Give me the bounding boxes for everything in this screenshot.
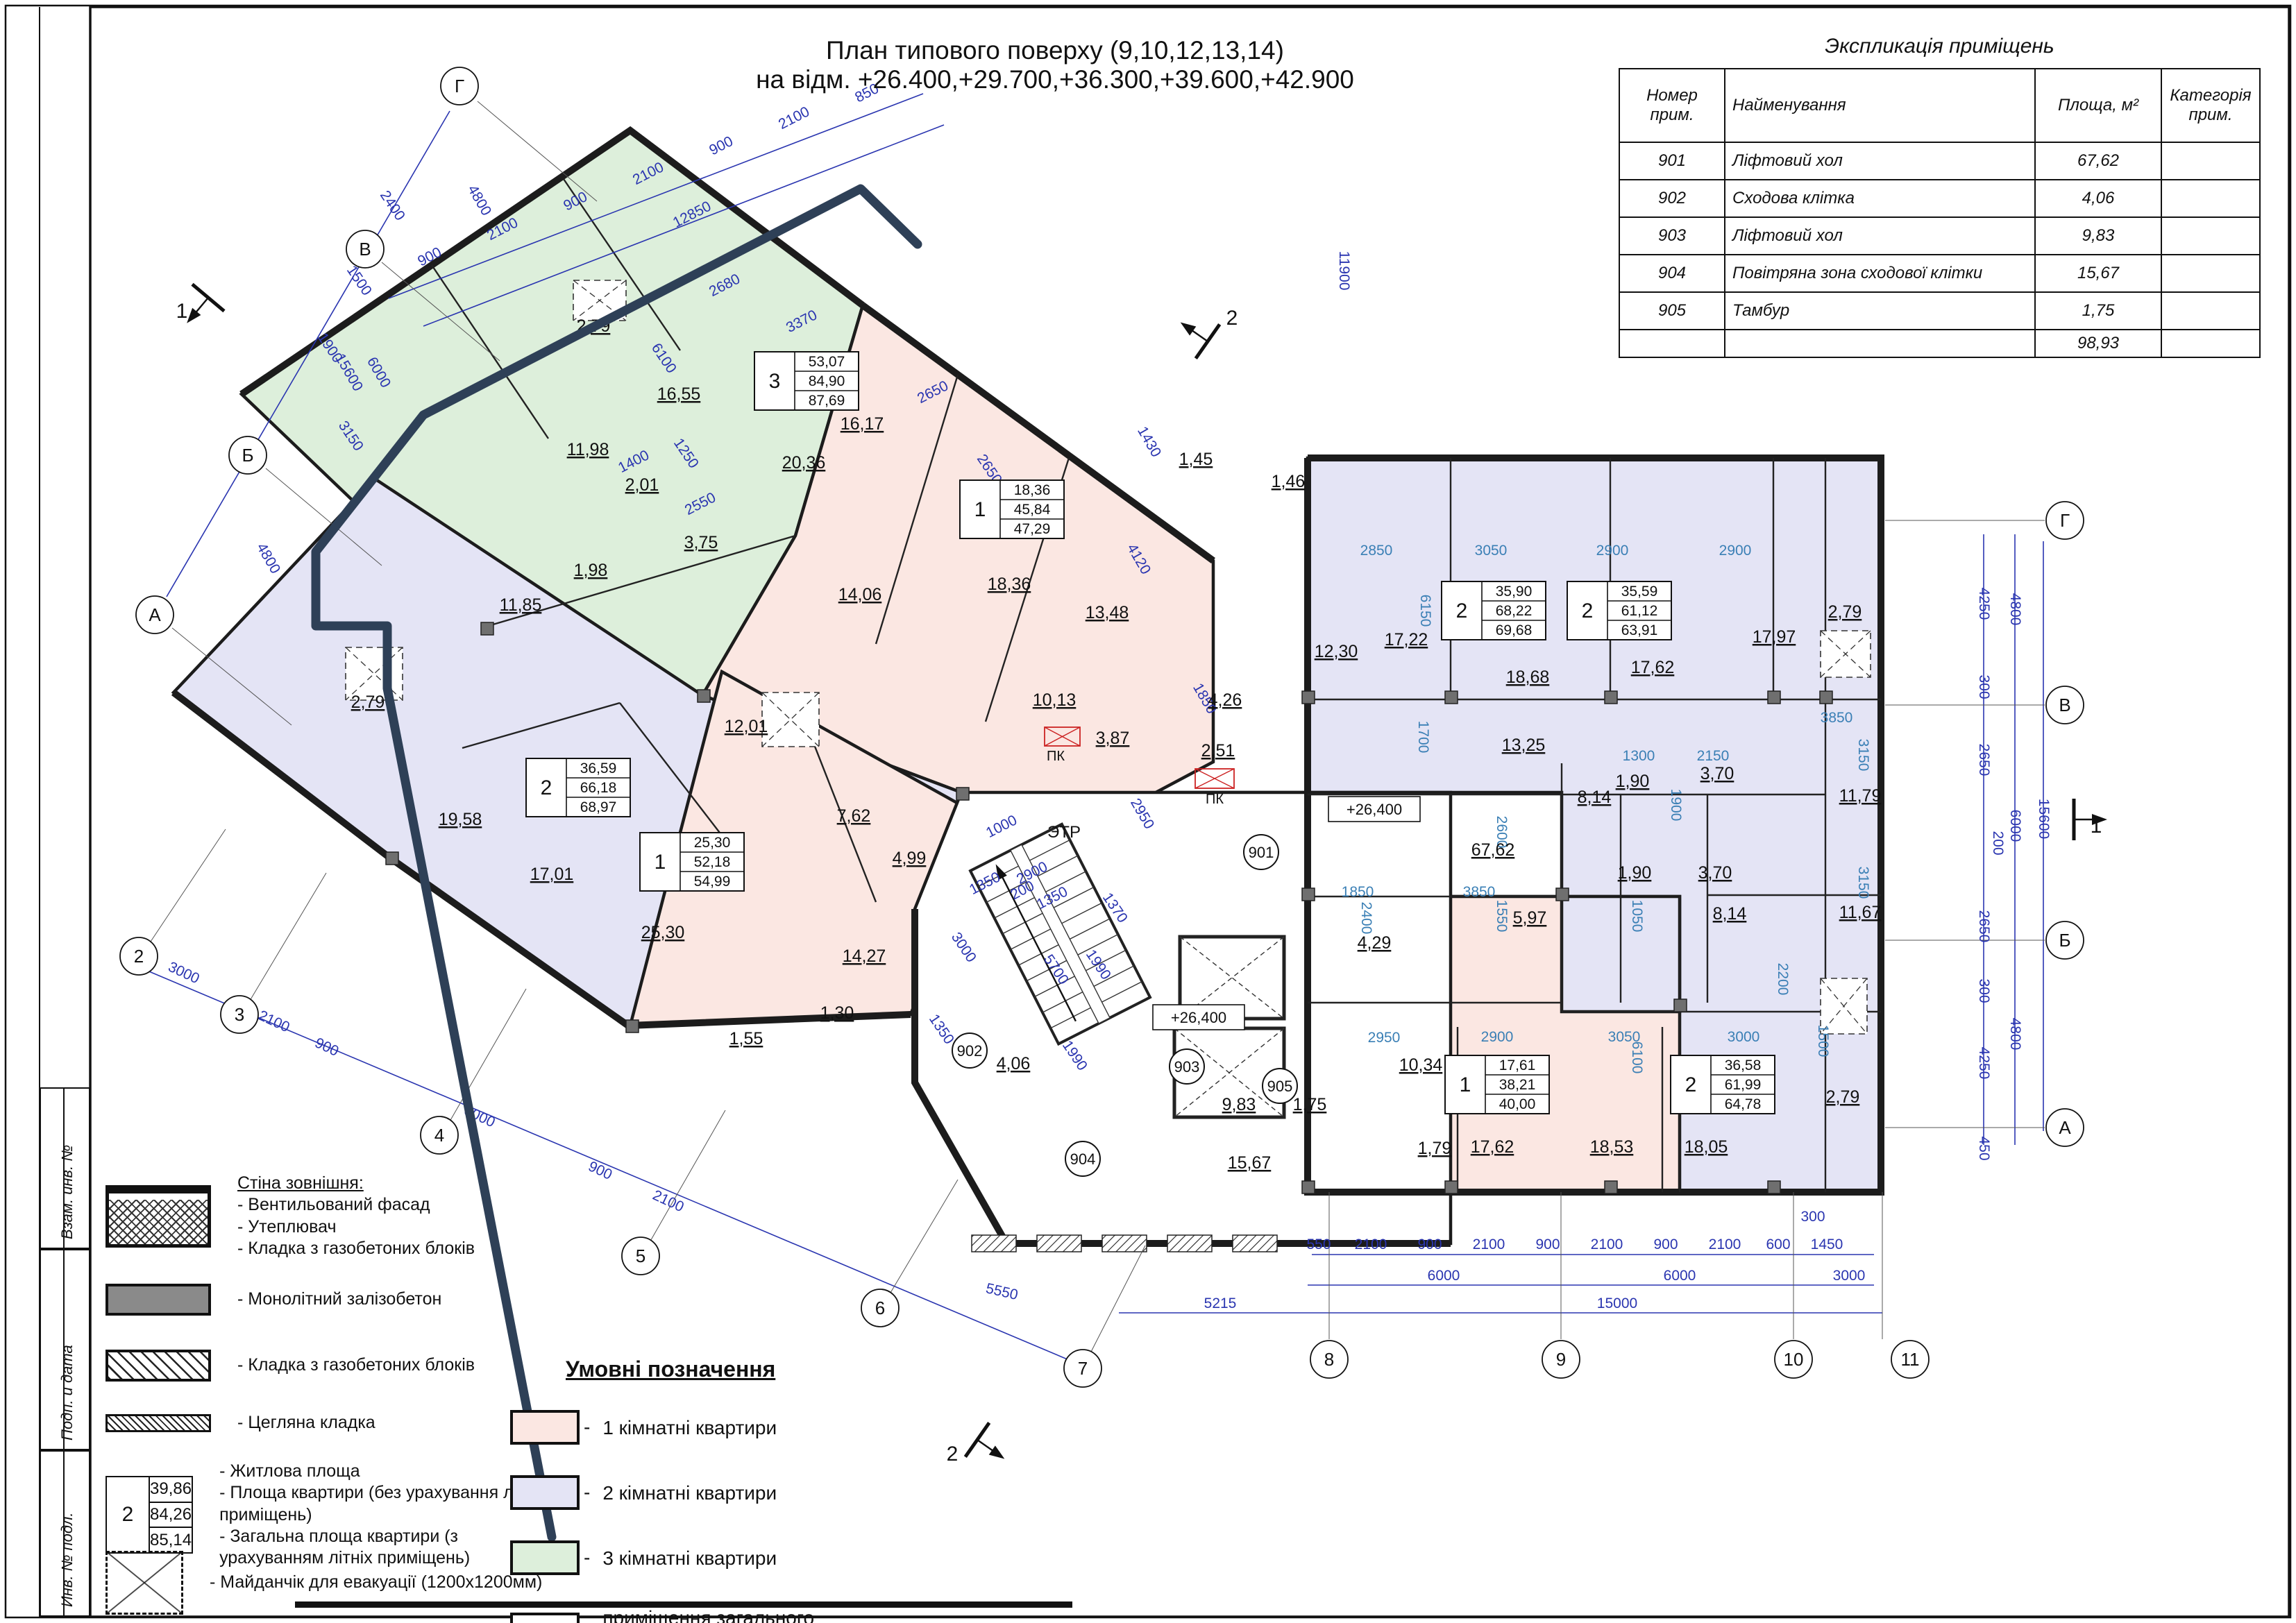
room-area-label: 20,36 bbox=[782, 453, 826, 473]
apartment-spec-box: 353,0784,9087,69 bbox=[754, 352, 859, 410]
axis-label: А bbox=[2059, 1117, 2071, 1138]
axis-label: 7 bbox=[1078, 1358, 1088, 1379]
table-cell: 15,67 bbox=[2035, 255, 2161, 292]
dimension-label: 5550 bbox=[984, 1280, 1020, 1303]
room-area-label: 16,55 bbox=[657, 384, 701, 404]
table-cell: 901 bbox=[1619, 142, 1725, 180]
spec-box-rooms: 1 bbox=[655, 851, 666, 874]
dimension-label: 4250 bbox=[1976, 588, 1992, 620]
dimension-label: 6000 bbox=[2007, 810, 2023, 842]
dimension-label: 2150 bbox=[1697, 748, 1730, 764]
spec-box-rooms: 3 bbox=[769, 370, 781, 393]
room-area-label: 11,98 bbox=[567, 440, 609, 459]
dimension-label: 2950 bbox=[1368, 1030, 1401, 1046]
legend-color-swatch bbox=[510, 1540, 580, 1575]
dimension-label: 300 bbox=[1800, 1209, 1825, 1225]
dimension-label: 2900 bbox=[1596, 543, 1629, 559]
concrete-pier bbox=[1768, 1181, 1780, 1193]
room-area-label: 1,90 bbox=[1618, 863, 1652, 883]
spec-box-rooms: 2 bbox=[1456, 600, 1468, 622]
room-area-label: 4,99 bbox=[893, 849, 927, 868]
room-area-label: 1,46 bbox=[1272, 472, 1306, 491]
spec-box-area: 84,90 bbox=[809, 373, 845, 389]
dimension-label: 3150 bbox=[1855, 867, 1871, 899]
hatched-wall bbox=[1167, 1235, 1212, 1252]
dimension-label: 6100 bbox=[1629, 1042, 1645, 1074]
legend-exterior-wall-label: Стіна зовнішня:- Вентильований фасад- Ут… bbox=[237, 1173, 475, 1259]
plan-title: План типового поверху (9,10,12,13,14) на… bbox=[639, 36, 1471, 94]
spec-box-area: 38,21 bbox=[1499, 1077, 1536, 1093]
dimension-label: 3850 bbox=[1821, 710, 1853, 726]
room-area-label: 10,34 bbox=[1399, 1055, 1443, 1075]
concrete-pier bbox=[1302, 1181, 1315, 1193]
axis-leader bbox=[1090, 1246, 1145, 1354]
table-cell: Ліфтовий хол bbox=[1725, 142, 2035, 180]
room-area-label: 10,13 bbox=[1033, 690, 1077, 710]
explication-table: Экспликація приміщень Номер прим.Наймену… bbox=[1619, 35, 2261, 358]
room-area-label: 4,29 bbox=[1358, 933, 1392, 953]
dimension-label: 4800 bbox=[253, 541, 283, 577]
table-row: 903Ліфтовий хол9,83 bbox=[1619, 217, 2260, 255]
spec-box-rooms: 2 bbox=[1582, 600, 1594, 622]
room-area-label: 12,30 bbox=[1315, 642, 1358, 661]
axis-label: Г bbox=[2060, 510, 2070, 531]
spec-box-area: 45,84 bbox=[1014, 502, 1051, 518]
room-area-label: 13,48 bbox=[1086, 603, 1129, 622]
spec-box-area: 35,59 bbox=[1621, 584, 1658, 600]
legend-exterior-wall: Стіна зовнішня:- Вентильований фасад- Ут… bbox=[105, 1173, 475, 1259]
legend-dash: - bbox=[584, 1481, 590, 1504]
table-cell: Сходова клітка bbox=[1725, 180, 2035, 217]
spec-box-area: 66,18 bbox=[580, 780, 617, 796]
axis-label: 8 bbox=[1324, 1349, 1334, 1370]
table-total-row: 98,93 bbox=[1619, 330, 2260, 357]
spec-box-area: 52,18 bbox=[694, 854, 731, 870]
table-cell bbox=[2161, 142, 2260, 180]
table-cell: 9,83 bbox=[2035, 217, 2161, 255]
axis-leader bbox=[149, 829, 226, 944]
table-row: 905Тамбур1,75 bbox=[1619, 292, 2260, 330]
axis-label: А bbox=[149, 604, 161, 625]
axis-label: 5 bbox=[636, 1246, 645, 1266]
dimension-label: 2900 bbox=[1481, 1029, 1514, 1045]
legend-monolithic-concrete-swatch bbox=[105, 1284, 211, 1316]
room-area-label: 8,14 bbox=[1713, 904, 1747, 924]
dimension-label: 3000 bbox=[1833, 1268, 1866, 1284]
room-area-label: 67,62 bbox=[1471, 840, 1515, 860]
room-area-label: 4,26 bbox=[1208, 690, 1242, 710]
hatched-wall bbox=[972, 1235, 1016, 1252]
legend-area-spec-swatch: 239,8684,2685,14 bbox=[105, 1476, 193, 1554]
dimension-label: 900 bbox=[312, 1035, 341, 1060]
concrete-pier bbox=[1302, 888, 1315, 901]
legend-item-label: 2 кімнатні квартири bbox=[602, 1481, 777, 1505]
section-number: 1 bbox=[176, 300, 188, 323]
spec-box-area: 18,36 bbox=[1014, 482, 1051, 498]
room-area-label: 1,75 bbox=[1293, 1095, 1327, 1114]
dimension-label: 1430 bbox=[1134, 424, 1164, 460]
legend-exterior-wall-swatch bbox=[105, 1185, 211, 1248]
table-cell: 903 bbox=[1619, 217, 1725, 255]
table-row: 904Повітряна зона сходової клітки15,67 bbox=[1619, 255, 2260, 292]
room-area-label: 1,55 bbox=[729, 1029, 763, 1048]
level-mark: +26,400 bbox=[1347, 801, 1402, 818]
dimension-label: 200 bbox=[1990, 831, 2006, 855]
dimension-label: 900 bbox=[1653, 1237, 1678, 1252]
room-area-label: 17,01 bbox=[530, 865, 574, 884]
room-area-label: 2,79 bbox=[1826, 1087, 1860, 1107]
apartment-spec-box: 117,6138,2140,00 bbox=[1445, 1055, 1549, 1114]
axis-label: 9 bbox=[1556, 1349, 1566, 1370]
room-area-label: 14,27 bbox=[843, 946, 886, 966]
concrete-pier bbox=[1605, 1181, 1617, 1193]
dimension-label: 900 bbox=[707, 133, 736, 158]
concrete-pier bbox=[481, 622, 493, 635]
legend-brick-masonry-swatch bbox=[105, 1414, 211, 1432]
legend-brick-masonry: - Цегляна кладка bbox=[105, 1412, 375, 1434]
spec-box-rooms: 2 bbox=[1685, 1073, 1697, 1096]
room-area-label: 5,97 bbox=[1513, 908, 1547, 928]
dimension-label: 15000 bbox=[1597, 1295, 1637, 1311]
dimension-label: 2100 bbox=[1709, 1237, 1741, 1252]
dimension-label: 3000 bbox=[1728, 1029, 1760, 1045]
hatched-wall bbox=[1037, 1235, 1081, 1252]
dimension-label: 900 bbox=[1535, 1237, 1560, 1252]
dimension-label: 2100 bbox=[776, 103, 812, 133]
table-total-cell bbox=[1619, 330, 1725, 357]
symbols-legend-title: Умовні позначення bbox=[566, 1357, 1038, 1382]
spec-box-area: 25,30 bbox=[694, 835, 731, 851]
room-area-label: 19,58 bbox=[439, 810, 482, 829]
dimension-label: 2100 bbox=[1591, 1237, 1623, 1252]
explication-title: Экспликація приміщень bbox=[1619, 35, 2261, 58]
room-area-label: 18,53 bbox=[1590, 1137, 1634, 1157]
room-area-label: 18,36 bbox=[988, 575, 1031, 594]
spec-box-area: 36,58 bbox=[1725, 1057, 1762, 1073]
spec-box-area: 53,07 bbox=[809, 354, 845, 370]
dimension-label: 1700 bbox=[1415, 721, 1431, 754]
dimension-label: 1050 bbox=[1629, 900, 1645, 933]
room-area-label: 17,62 bbox=[1471, 1137, 1514, 1157]
dimension-label: 2650 bbox=[1976, 744, 1992, 776]
legend-color-swatch bbox=[510, 1613, 580, 1623]
spec-box-area: 87,69 bbox=[809, 393, 845, 409]
axis-leader bbox=[478, 101, 597, 201]
dimension-label: 2100 bbox=[256, 1008, 292, 1036]
dimension-label: 550 bbox=[1306, 1237, 1331, 1252]
etr-label: ЭТР bbox=[1047, 823, 1081, 842]
dimension-label: 1550 bbox=[1494, 900, 1510, 933]
plan-title-line1: План типового поверху (9,10,12,13,14) bbox=[639, 36, 1471, 65]
room-area-label: 18,68 bbox=[1506, 668, 1550, 687]
room-area-label: 7,62 bbox=[837, 806, 871, 826]
side-strip-label: Взам. инв. № bbox=[58, 1145, 76, 1239]
axis-label: 3 bbox=[235, 1004, 244, 1025]
legend-item-label: приміщення загального користування bbox=[602, 1606, 894, 1623]
room-area-label: 25,30 bbox=[641, 923, 685, 942]
table-header: Категорія прим. bbox=[2161, 69, 2260, 142]
legend-item: -приміщення загального користування bbox=[510, 1606, 1038, 1623]
room-area-label: 2,01 bbox=[625, 475, 659, 495]
table-total-cell bbox=[2161, 330, 2260, 357]
table-cell: Тамбур bbox=[1725, 292, 2035, 330]
table-cell: 1,75 bbox=[2035, 292, 2161, 330]
room-number: 902 bbox=[957, 1042, 983, 1060]
dimension-label: 1500 bbox=[1815, 1025, 1831, 1057]
plan-title-line2: на відм. +26.400,+29.700,+36.300,+39.600… bbox=[639, 65, 1471, 94]
room-area-label: 1,30 bbox=[820, 1003, 854, 1023]
dimension-label: 2100 bbox=[1473, 1237, 1505, 1252]
apartment-spec-box: 125,3052,1854,99 bbox=[640, 833, 744, 891]
room-area-label: 3,87 bbox=[1096, 729, 1130, 748]
room-area-label: 2,51 bbox=[1201, 741, 1235, 760]
dimension-label: 3000 bbox=[166, 959, 202, 987]
spec-box-area: 35,90 bbox=[1496, 584, 1533, 600]
axis-label: 2 bbox=[134, 946, 144, 967]
table-total-cell bbox=[1725, 330, 2035, 357]
axis-leader bbox=[250, 873, 326, 1001]
table-cell: Ліфтовий хол bbox=[1725, 217, 2035, 255]
explication-body: 901Ліфтовий хол67,62902Сходова клітка4,0… bbox=[1619, 142, 2260, 357]
dimension-label: 1300 bbox=[1623, 748, 1655, 764]
axis-label: Г bbox=[455, 76, 464, 96]
room-area-label: 18,05 bbox=[1685, 1137, 1728, 1157]
dimension-label: 11900 bbox=[1336, 251, 1352, 291]
room-area-label: 9,83 bbox=[1222, 1095, 1256, 1114]
dimension-label: 2650 bbox=[1976, 910, 1992, 943]
legend-color-swatch bbox=[510, 1410, 580, 1445]
table-cell: 905 bbox=[1619, 292, 1725, 330]
dimension-label: 1500 bbox=[344, 263, 375, 299]
table-header: Номер прим. bbox=[1619, 69, 1725, 142]
concrete-pier bbox=[698, 690, 710, 702]
legend-dash: - bbox=[584, 1416, 590, 1438]
dimension-label: 3850 bbox=[1463, 884, 1496, 900]
concrete-pier bbox=[1605, 691, 1617, 704]
room-area-label: 3,70 bbox=[1698, 863, 1732, 883]
legend-aerated-block-label: - Кладка з газобетоних блоків bbox=[237, 1354, 475, 1376]
concrete-pier bbox=[1768, 691, 1780, 704]
spec-box-area: 68,97 bbox=[580, 799, 617, 815]
concrete-pier bbox=[626, 1020, 639, 1033]
pk-label: ПК bbox=[1047, 749, 1065, 764]
concrete-pier bbox=[1445, 1181, 1458, 1193]
room-area-label: 3,75 bbox=[684, 533, 718, 552]
section-number: 1 bbox=[2091, 815, 2102, 838]
dimension-label: 2900 bbox=[1719, 543, 1752, 559]
table-row: 901Ліфтовий хол67,62 bbox=[1619, 142, 2260, 180]
concrete-pier bbox=[1556, 888, 1569, 901]
dimension-label: 900 bbox=[586, 1158, 614, 1183]
room-area-label: 11,85 bbox=[500, 595, 542, 615]
dimension-label: 3150 bbox=[1855, 739, 1871, 772]
room-area-label: 13,25 bbox=[1502, 736, 1546, 755]
concrete-pier bbox=[1445, 691, 1458, 704]
table-cell: 902 bbox=[1619, 180, 1725, 217]
axis-label: 11 bbox=[1901, 1349, 1920, 1370]
room-number: 903 bbox=[1174, 1058, 1200, 1076]
room-number: 904 bbox=[1070, 1150, 1096, 1168]
room-area-label: 2,79 bbox=[351, 692, 385, 712]
legend-aerated-block: - Кладка з газобетоних блоків bbox=[105, 1350, 475, 1382]
spec-box-area: 63,91 bbox=[1621, 622, 1658, 638]
dimension-label: 4800 bbox=[2007, 1018, 2023, 1051]
table-cell: 904 bbox=[1619, 255, 1725, 292]
section-number: 2 bbox=[1226, 307, 1238, 330]
axis-label: Б bbox=[242, 445, 253, 466]
dimension-label: 6150 bbox=[1417, 595, 1433, 627]
dimension-label: 15600 bbox=[2036, 799, 2052, 839]
spec-box-area: 17,61 bbox=[1499, 1057, 1536, 1073]
room-area-label: 15,67 bbox=[1228, 1153, 1272, 1173]
spec-box-area: 64,78 bbox=[1725, 1096, 1762, 1112]
dimension-label: 2850 bbox=[1360, 543, 1393, 559]
apartment-spec-box: 118,3645,8447,29 bbox=[960, 480, 1064, 538]
legend-item: -2 кімнатні квартири bbox=[510, 1475, 1038, 1510]
legend-evacuation-pad-label: - Майданчік для евакуації (1200х1200мм) bbox=[210, 1572, 542, 1593]
room-area-label: 8,14 bbox=[1578, 788, 1612, 807]
spec-box-rooms: 1 bbox=[974, 498, 986, 521]
spec-box-rooms: 2 bbox=[541, 776, 552, 799]
dimension-label: 2100 bbox=[650, 1187, 686, 1216]
concrete-pier bbox=[386, 852, 398, 865]
pk-label: ПК bbox=[1206, 792, 1224, 807]
room-area-label: 17,22 bbox=[1385, 630, 1428, 649]
axis-label: 4 bbox=[434, 1125, 444, 1146]
spec-box-area: 36,59 bbox=[580, 760, 617, 776]
room-number: 901 bbox=[1249, 844, 1274, 861]
table-cell bbox=[2161, 180, 2260, 217]
dimension-label: 2400 bbox=[377, 188, 408, 224]
axis-leader bbox=[649, 1110, 725, 1243]
table-cell: Повітряна зона сходової клітки bbox=[1725, 255, 2035, 292]
table-cell: 67,62 bbox=[2035, 142, 2161, 180]
apartment-spec-box: 235,5961,1263,91 bbox=[1567, 581, 1671, 640]
legend-dash: - bbox=[584, 1619, 590, 1623]
legend-item-label: 1 кімнатні квартири bbox=[602, 1416, 777, 1440]
spec-box-area: 68,22 bbox=[1496, 603, 1533, 619]
axis-label: В bbox=[2059, 695, 2070, 715]
table-cell bbox=[2161, 217, 2260, 255]
room-area-label: 1,45 bbox=[1179, 450, 1213, 469]
hatched-wall bbox=[1102, 1235, 1147, 1252]
legend-item: -1 кімнатні квартири bbox=[510, 1410, 1038, 1445]
room-area-label: 14,06 bbox=[838, 585, 882, 604]
legend-evacuation-pad-swatch bbox=[105, 1551, 183, 1615]
room-area-label: 12,01 bbox=[725, 717, 768, 736]
spec-box-area: 61,99 bbox=[1725, 1077, 1762, 1093]
table-total-cell: 98,93 bbox=[2035, 330, 2161, 357]
room-area-label: 11,67 bbox=[1839, 903, 1882, 922]
table-cell bbox=[2161, 255, 2260, 292]
axis-label: 10 bbox=[1784, 1349, 1804, 1370]
table-cell bbox=[2161, 292, 2260, 330]
dimension-label: 6000 bbox=[1664, 1268, 1696, 1284]
room-area-label: 17,97 bbox=[1753, 627, 1796, 647]
legend-color-swatch bbox=[510, 1475, 580, 1510]
side-strip-label: Инв. № подл. bbox=[58, 1512, 76, 1607]
side-strip-label: Подп. и дата bbox=[58, 1345, 76, 1441]
dimension-label: 2200 bbox=[1775, 963, 1791, 996]
dimension-label: 600 bbox=[1766, 1237, 1790, 1252]
dimension-label: 4250 bbox=[1976, 1047, 1992, 1080]
room-area-label: 1,79 bbox=[1418, 1139, 1452, 1158]
dimension-label: 1450 bbox=[1811, 1237, 1843, 1252]
concrete-pier bbox=[956, 788, 969, 800]
legend-aerated-block-swatch bbox=[105, 1350, 211, 1382]
room-area-label: 11,79 bbox=[1839, 786, 1882, 806]
section-mark bbox=[1168, 305, 1219, 359]
level-mark: +26,400 bbox=[1171, 1009, 1226, 1026]
dimension-label: 1900 bbox=[1668, 789, 1684, 822]
room-area-label: 1,98 bbox=[574, 561, 608, 580]
room-area-label: 1,90 bbox=[1616, 772, 1650, 791]
spec-box-area: 61,12 bbox=[1621, 603, 1658, 619]
dimension-label: 2400 bbox=[1358, 902, 1374, 935]
apartment-spec-box: 235,9068,2269,68 bbox=[1442, 581, 1546, 640]
table-row: 902Сходова клітка4,06 bbox=[1619, 180, 2260, 217]
room-area-label: 16,17 bbox=[841, 414, 884, 434]
hatched-wall bbox=[1233, 1235, 1277, 1252]
dimension-label: 900 bbox=[1417, 1237, 1442, 1252]
dimension-label: 5215 bbox=[1204, 1295, 1237, 1311]
spec-box-area: 69,68 bbox=[1496, 622, 1533, 638]
dimension-label: 1850 bbox=[1342, 884, 1374, 900]
apartment-colors-legend: Умовні позначення -1 кімнатні квартири-2… bbox=[510, 1357, 1038, 1623]
apartment-spec-box: 236,5966,1868,97 bbox=[526, 758, 630, 817]
dimension-label: 6000 bbox=[1428, 1268, 1460, 1284]
room-area-label: 17,62 bbox=[1631, 658, 1675, 677]
axis-label: 6 bbox=[875, 1298, 885, 1318]
axis-leader bbox=[888, 1180, 958, 1296]
dimension-label: 2100 bbox=[1355, 1237, 1387, 1252]
dimension-label: 300 bbox=[1976, 978, 1992, 1003]
spec-box-area: 40,00 bbox=[1499, 1096, 1536, 1112]
spec-box-area: 54,99 bbox=[694, 874, 731, 890]
concrete-pier bbox=[1820, 691, 1832, 704]
dimension-label: 3050 bbox=[1475, 543, 1508, 559]
room-area-label: 3,70 bbox=[1700, 764, 1734, 783]
explication-grid: Номер прим.НайменуванняПлоща, м²Категорі… bbox=[1619, 68, 2261, 358]
section-arrow-head bbox=[1177, 318, 1196, 336]
axis-label: Б bbox=[2059, 930, 2070, 951]
concrete-pier bbox=[1674, 999, 1687, 1012]
dimension-label: 450 bbox=[1976, 1136, 1992, 1160]
room-number: 905 bbox=[1267, 1078, 1293, 1095]
table-header: Площа, м² bbox=[2035, 69, 2161, 142]
table-cell: 4,06 bbox=[2035, 180, 2161, 217]
table-header: Найменування bbox=[1725, 69, 2035, 142]
dimension-label: 4800 bbox=[2007, 593, 2023, 626]
legend-dash: - bbox=[584, 1547, 590, 1569]
concrete-pier bbox=[1302, 691, 1315, 704]
explication-header: Номер прим.НайменуванняПлоща, м²Категорі… bbox=[1619, 69, 2260, 142]
room-area-label: 4,06 bbox=[997, 1054, 1031, 1073]
legend-item-label: 3 кімнатні квартири bbox=[602, 1546, 777, 1570]
room-area-label: 2,79 bbox=[1828, 602, 1862, 622]
drawing-sheet: 9002100900210090021008501285024001500190… bbox=[0, 0, 2296, 1623]
spec-box-area: 47,29 bbox=[1014, 521, 1051, 537]
legend-evacuation-pad: - Майданчік для евакуації (1200х1200мм) bbox=[105, 1551, 542, 1615]
dimension-label: 4800 bbox=[464, 182, 494, 219]
legend-monolithic-concrete-label: - Монолітний залізобетон bbox=[237, 1289, 441, 1310]
dimension-label: 300 bbox=[1976, 674, 1992, 699]
apartment-spec-box: 236,5861,9964,78 bbox=[1671, 1055, 1775, 1114]
legend-monolithic-concrete: - Монолітний залізобетон bbox=[105, 1284, 441, 1316]
axis-label: В bbox=[359, 239, 371, 260]
legend-item: -3 кімнатні квартири bbox=[510, 1540, 1038, 1575]
legend-brick-masonry-label: - Цегляна кладка bbox=[237, 1412, 375, 1434]
